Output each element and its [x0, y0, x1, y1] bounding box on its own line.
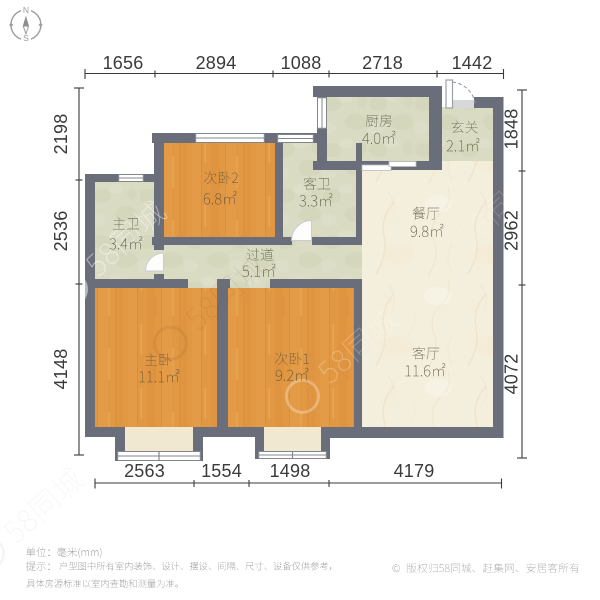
svg-text:N: N: [23, 5, 29, 15]
svg-text:S: S: [23, 33, 29, 43]
svg-text:2563: 2563: [124, 461, 165, 481]
svg-text:2962: 2962: [502, 210, 522, 251]
svg-text:1848: 1848: [502, 109, 522, 150]
svg-text:2198: 2198: [51, 114, 71, 155]
svg-text:1554: 1554: [201, 461, 242, 481]
svg-text:2536: 2536: [51, 211, 71, 252]
svg-text:2894: 2894: [196, 53, 237, 73]
svg-text:1442: 1442: [452, 53, 493, 73]
svg-text:4072: 4072: [502, 354, 522, 395]
svg-text:2718: 2718: [362, 53, 403, 73]
svg-text:1498: 1498: [270, 461, 311, 481]
svg-text:1656: 1656: [103, 53, 144, 73]
svg-text:1088: 1088: [281, 53, 322, 73]
svg-text:4148: 4148: [51, 349, 71, 390]
svg-text:4179: 4179: [394, 461, 435, 481]
